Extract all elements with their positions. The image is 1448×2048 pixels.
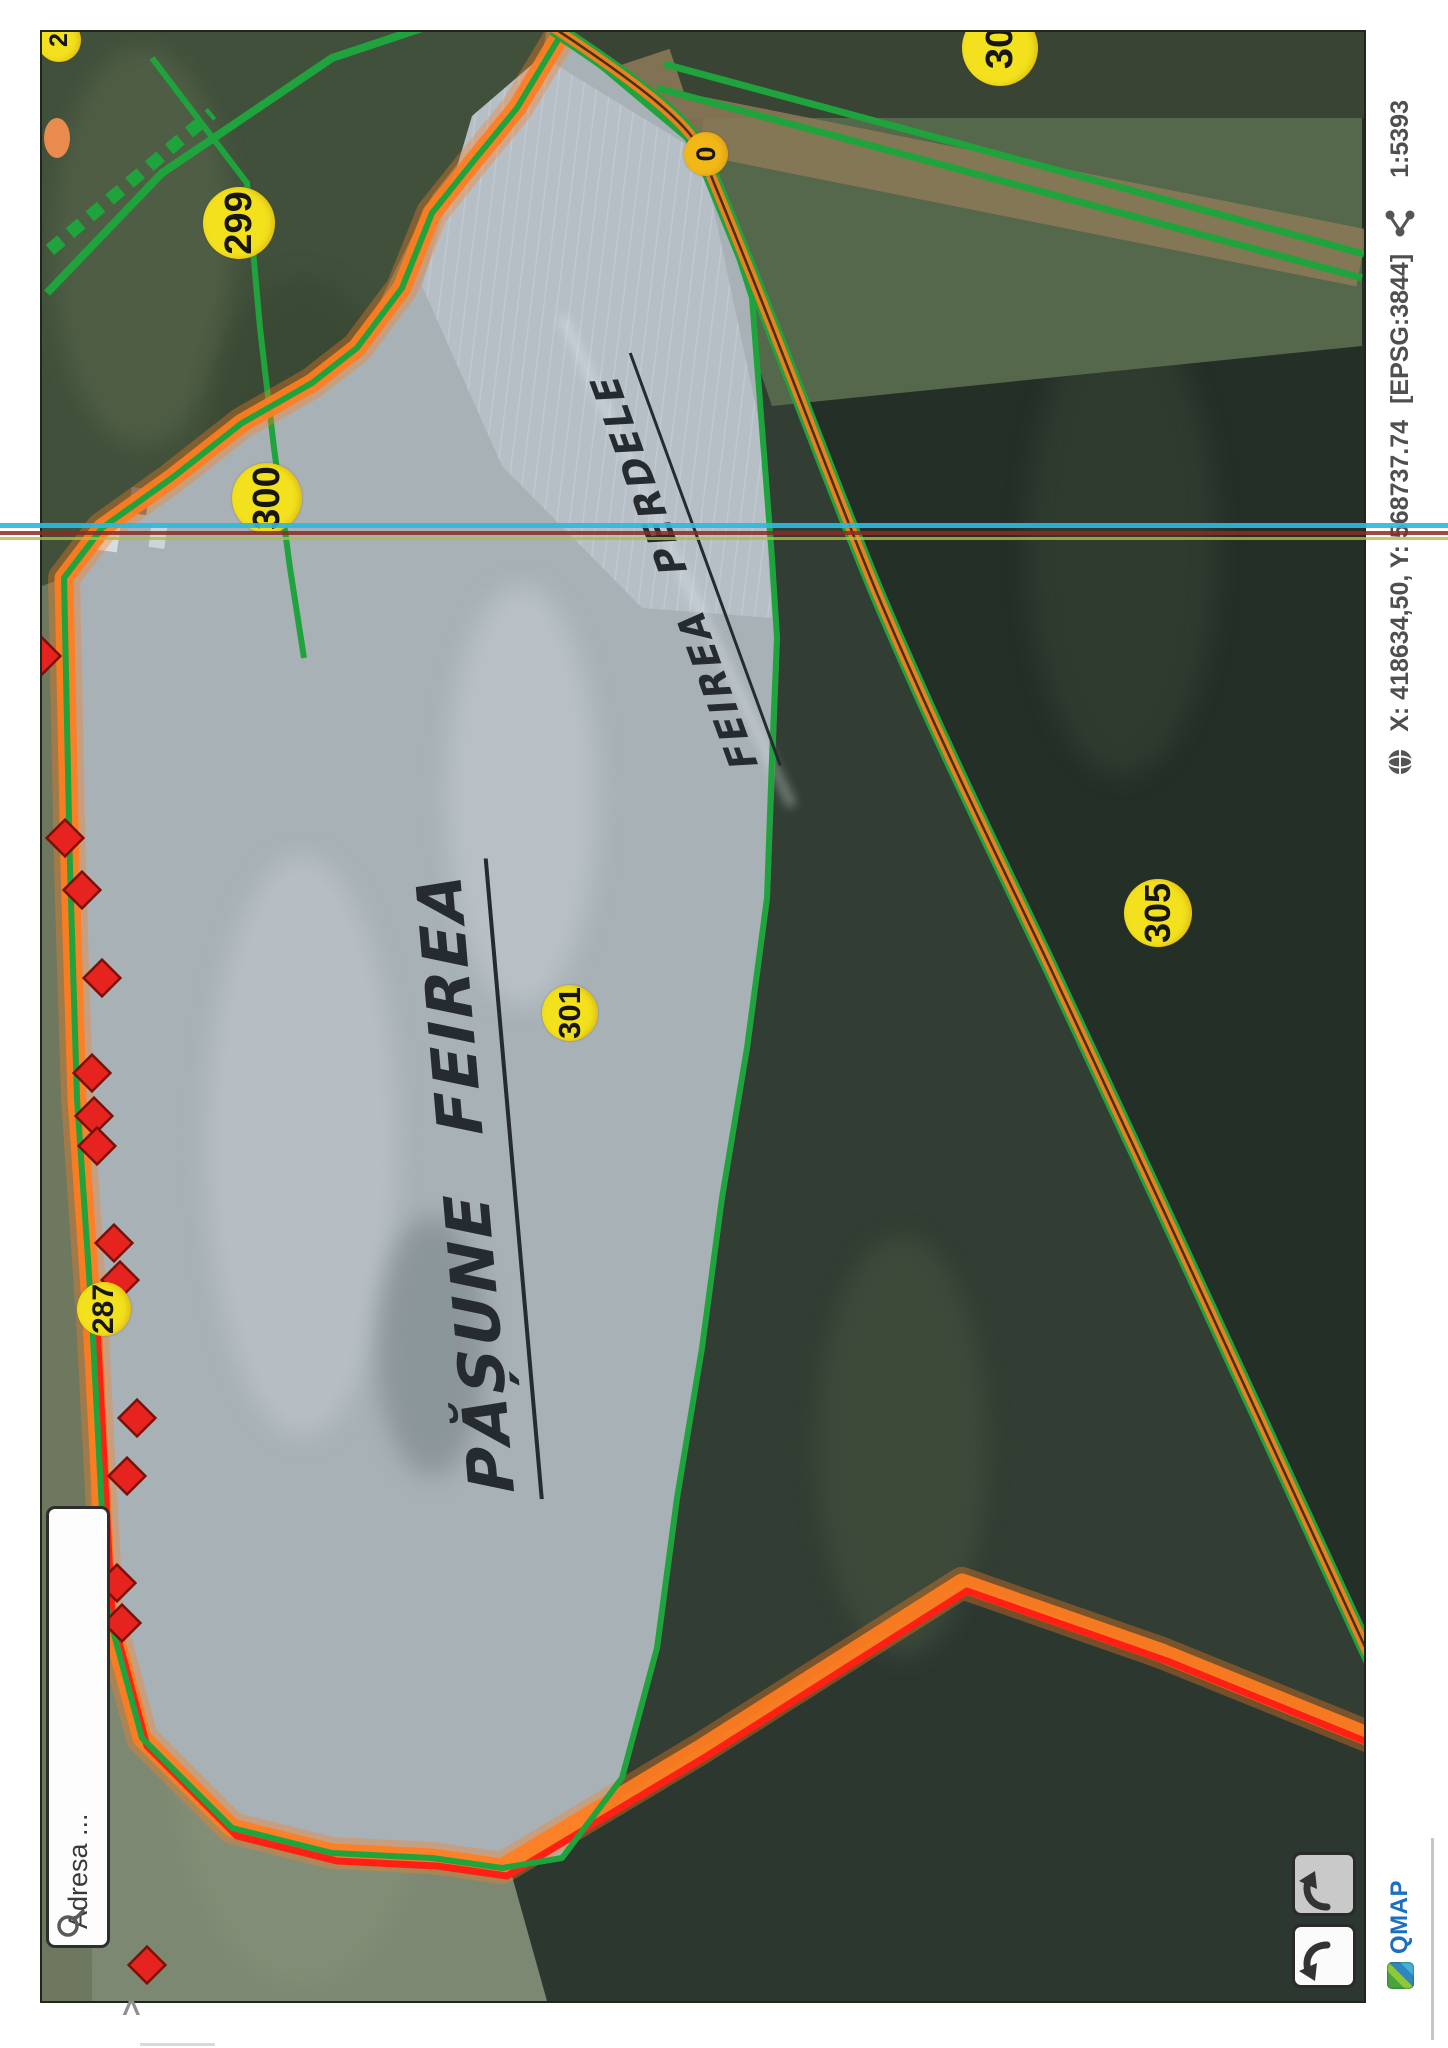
aerial-basemap bbox=[42, 30, 1366, 2001]
crs-code: [EPSG:3844] bbox=[1386, 254, 1415, 404]
map-layers bbox=[42, 30, 1366, 2001]
next-extent-button[interactable] bbox=[1292, 1852, 1356, 1916]
magnifier-icon[interactable] bbox=[49, 1901, 93, 1945]
parcel-label-299: 299 bbox=[203, 187, 275, 259]
status-bar: QMAP X: 418634,50, Y: 568737.74 [EPSG:38… bbox=[1372, 30, 1428, 2003]
address-search-box bbox=[46, 1506, 110, 1948]
cursor-coordinates: X: 418634,50, Y: 568737.74 bbox=[1386, 420, 1415, 732]
qmap-logo-text: QMAP bbox=[1386, 1880, 1414, 1954]
share-icon[interactable] bbox=[1384, 208, 1416, 238]
address-search-input[interactable] bbox=[63, 1509, 94, 1945]
map-scale: 1:5393 bbox=[1386, 100, 1415, 178]
curved-arrow-right-icon bbox=[1295, 1867, 1337, 1913]
curved-arrow-left-icon bbox=[1295, 1939, 1337, 1985]
parcel-label-300: 300 bbox=[232, 463, 302, 533]
parcel-label-287: 287 bbox=[77, 1282, 131, 1336]
parcel-label-0: 0 bbox=[684, 132, 728, 176]
qmap-logo: QMAP bbox=[1386, 1880, 1414, 1989]
orange-terrain-blob bbox=[44, 118, 70, 158]
qmap-application-window: 299 300 0 30 2 287 301 305 PĂȘUNE FEIREA… bbox=[0, 0, 1448, 2048]
scan-artifact-edge-line bbox=[1431, 1838, 1434, 2040]
qmap-logo-icon bbox=[1387, 1962, 1414, 1989]
scan-artifact-chevron: ^ bbox=[122, 1994, 141, 2031]
scan-artifact-bottom-mark bbox=[140, 2043, 215, 2046]
globe-icon bbox=[1386, 748, 1414, 776]
parcel-label-305: 305 bbox=[1124, 879, 1192, 947]
map-canvas[interactable]: 299 300 0 30 2 287 301 305 PĂȘUNE FEIREA… bbox=[40, 30, 1366, 2003]
previous-extent-button[interactable] bbox=[1292, 1924, 1356, 1988]
parcel-label-301: 301 bbox=[542, 985, 598, 1041]
